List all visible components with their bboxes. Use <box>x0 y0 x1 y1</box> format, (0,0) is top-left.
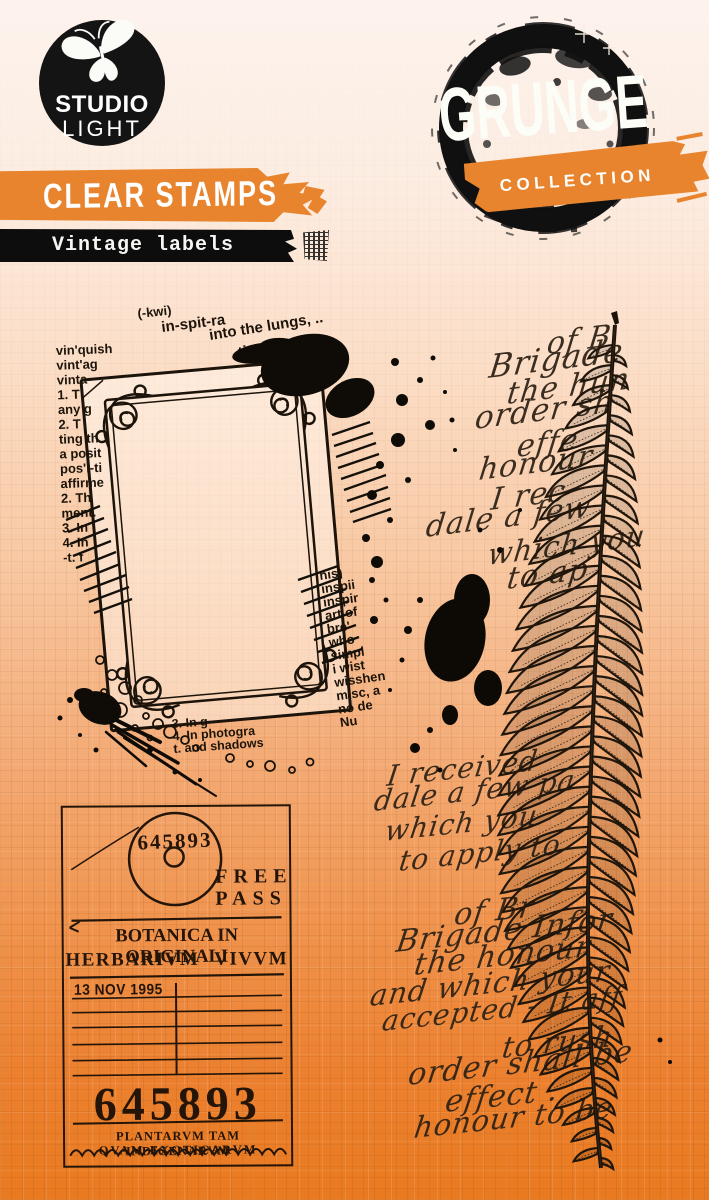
pass-text: PASS <box>215 888 292 910</box>
free-text: FREE <box>215 866 292 888</box>
fern-stamp <box>360 300 709 1200</box>
logo-light-text: LIGHT <box>62 116 142 141</box>
ticket-serial-large: 645893 <box>65 1075 291 1132</box>
ticket-free-pass: FREE PASS <box>215 866 293 910</box>
ticket-title-line2: HERBARIVM VIVVM <box>64 948 290 972</box>
studio-light-logo: STUDIO LIGHT <box>18 8 186 158</box>
subtitle-banner: Vintage labels <box>0 229 300 262</box>
logo-studio-text: STUDIO <box>55 91 149 118</box>
ticket-footer-line2: QVAM EXOTICARVM <box>65 1142 291 1159</box>
clear-stamps-text: CLEAR STAMPS <box>43 173 278 216</box>
clear-stamps-banner: CLEAR STAMPS <box>0 168 322 222</box>
stamp-set-packaging: STUDIO LIGHT GRUNGE <box>0 0 709 1200</box>
fern-leaflets <box>498 345 642 1169</box>
ticket-circle <box>129 813 222 906</box>
frame-paper <box>81 359 351 731</box>
ticket-date: 13 NOV 1995 <box>74 981 163 999</box>
grunge-collection-badge: GRUNGE COLLECTION <box>425 4 709 250</box>
ticket-stamp: 645893 FREE PASS BOTANICA IN ORIGINALI H… <box>61 804 294 1168</box>
subtitle-text: Vintage labels <box>0 234 234 257</box>
fern-tip <box>611 311 619 325</box>
ticket-serial-top: 645893 <box>113 826 238 856</box>
black-scratch-speck <box>303 230 329 261</box>
badge-grunge-text: GRUNGE <box>436 60 650 158</box>
